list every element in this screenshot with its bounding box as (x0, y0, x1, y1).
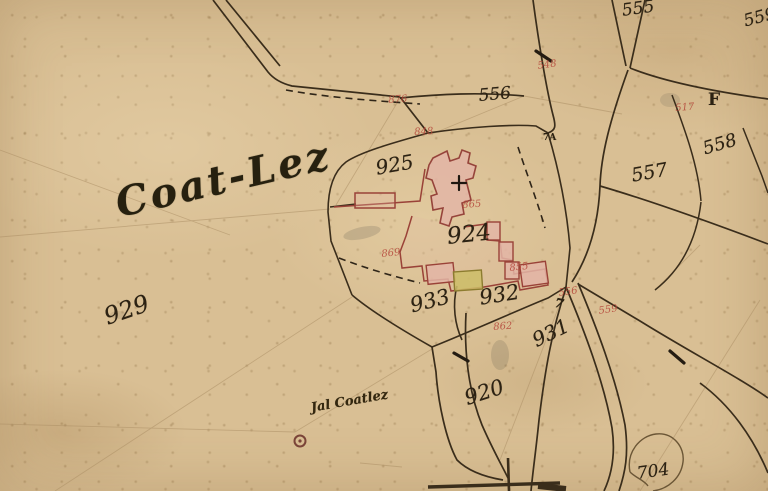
survey-lines (0, 96, 760, 491)
parcel-boundary-lines (655, 95, 768, 290)
east-building-2 (499, 242, 513, 261)
ink-smudges (110, 93, 680, 370)
church-building (426, 150, 476, 226)
east-building-1 (487, 222, 500, 240)
east-building-3 (505, 262, 519, 279)
south-building (426, 263, 455, 285)
pond-outline (629, 434, 683, 491)
survey-tick-marks (454, 51, 684, 363)
lower-road-lines (428, 283, 768, 491)
map-linework (0, 0, 768, 491)
cadastral-map: Coat-Lez Jal Coatlez 555 556 557 558 559… (0, 0, 768, 491)
buildings (334, 150, 548, 291)
yellow-outbuilding (453, 270, 482, 291)
west-building (355, 193, 395, 208)
gate-building (520, 261, 549, 286)
well-icon (295, 436, 306, 447)
